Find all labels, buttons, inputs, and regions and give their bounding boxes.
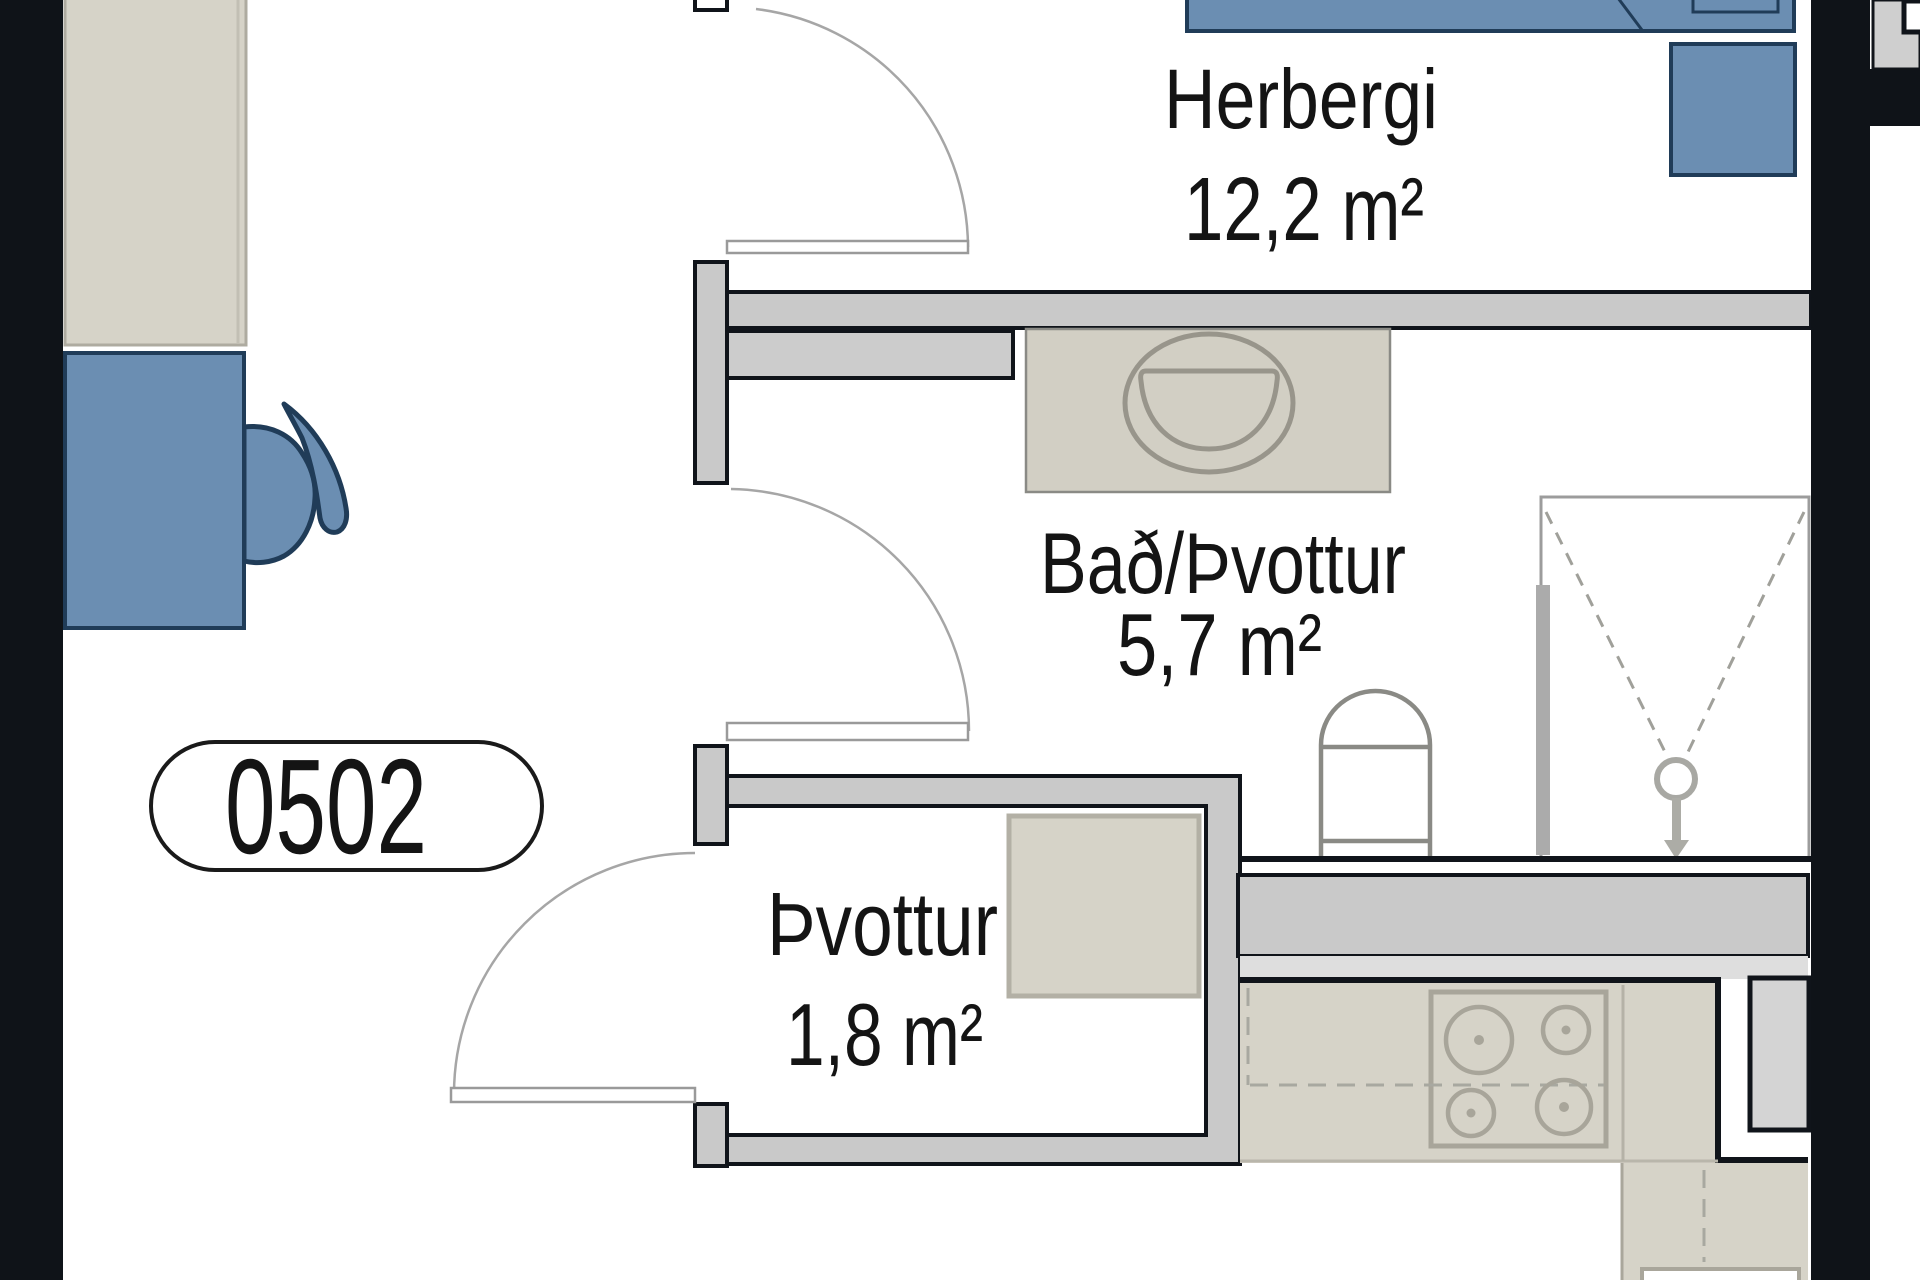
svg-text:5,7 m²: 5,7 m² (1117, 595, 1322, 694)
svg-text:Herbergi: Herbergi (1164, 52, 1438, 146)
svg-text:Þvottur: Þvottur (767, 875, 998, 975)
svg-text:12,2 m²: 12,2 m² (1184, 160, 1424, 260)
svg-text:0502: 0502 (225, 731, 427, 882)
svg-text:1,8 m²: 1,8 m² (786, 985, 983, 1084)
